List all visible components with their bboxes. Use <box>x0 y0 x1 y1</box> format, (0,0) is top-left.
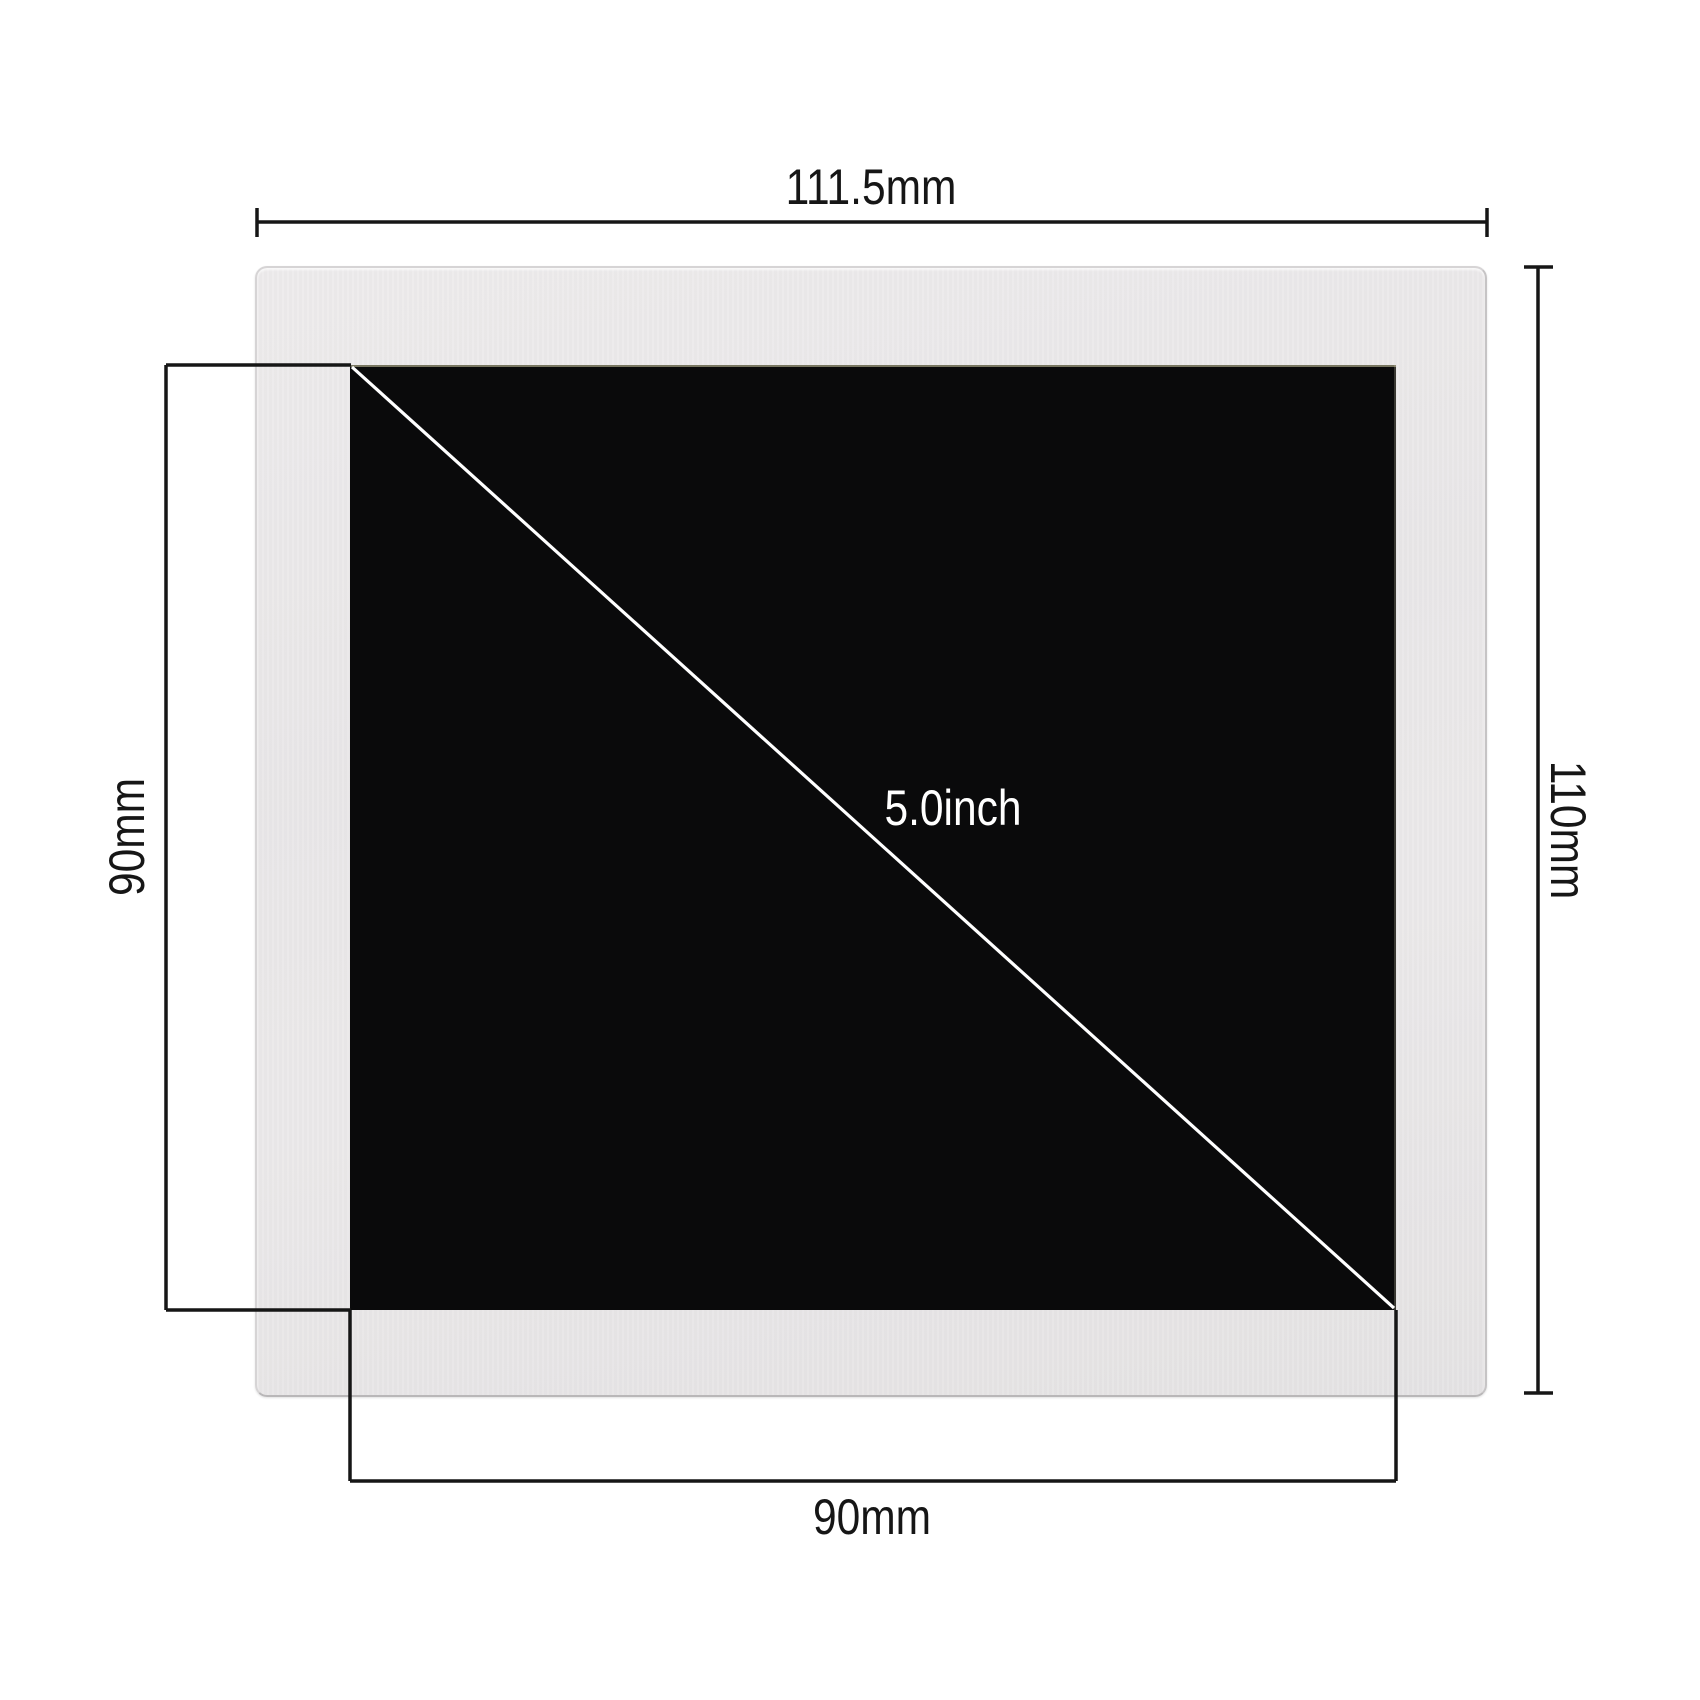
outer-width-label: 111.5mm <box>786 162 957 212</box>
lcd-active-area <box>350 365 1396 1310</box>
screen-diagonal-label: 5.0inch <box>884 783 1021 833</box>
active-height-label: 90mm <box>102 778 152 896</box>
dimension-diagram: 111.5mm 110mm 90mm 90mm 5.0inch <box>0 0 1700 1700</box>
active-width-label: 90mm <box>813 1492 931 1542</box>
outer-height-label: 110mm <box>1543 761 1593 900</box>
